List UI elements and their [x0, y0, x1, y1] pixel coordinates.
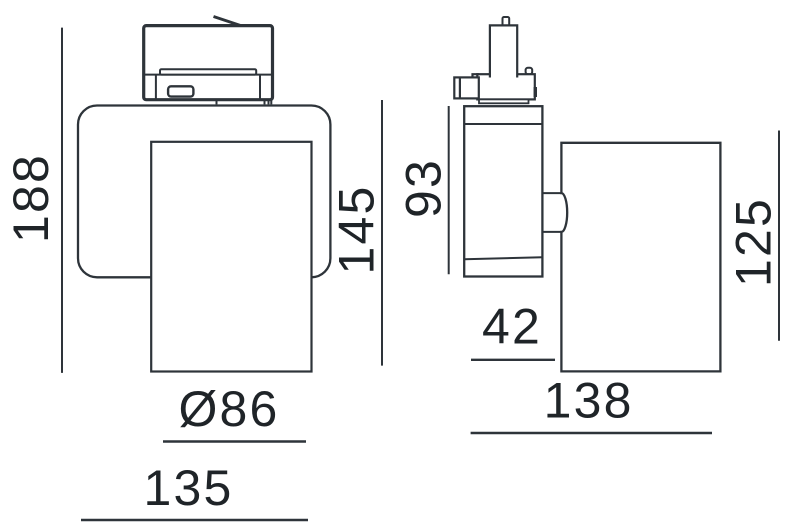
svg-text:125: 125 — [726, 197, 782, 287]
svg-text:Ø86: Ø86 — [178, 381, 279, 437]
svg-text:188: 188 — [3, 153, 59, 243]
svg-text:93: 93 — [396, 158, 452, 218]
svg-text:135: 135 — [143, 460, 233, 516]
svg-text:145: 145 — [329, 184, 385, 274]
svg-text:42: 42 — [482, 299, 542, 355]
svg-text:138: 138 — [544, 373, 634, 429]
